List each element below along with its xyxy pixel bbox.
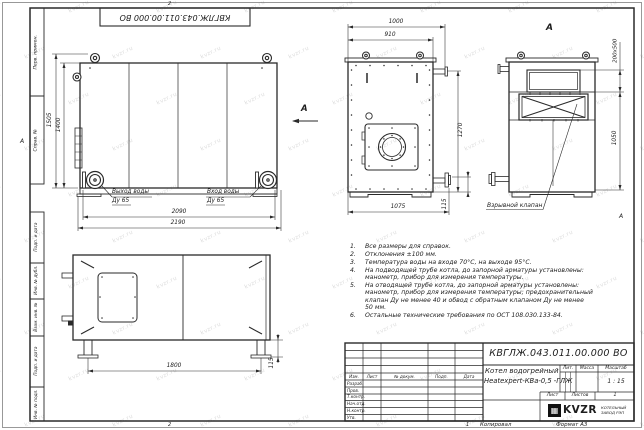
dim-top-leg-offset: 115: [270, 348, 276, 378]
zone-marker-right: А: [619, 214, 623, 220]
sheets-label: Листов: [565, 394, 595, 399]
footer-format-label: Формат А3: [556, 423, 587, 429]
label-water-outlet: Выход воды: [112, 190, 149, 196]
doc-name-line1: Котел водогрейный: [485, 368, 558, 375]
note-item: 1.Все размеры для справок.: [350, 243, 632, 250]
note-text: На подводящей трубе котла, до запорной а…: [365, 267, 584, 282]
row-tkontr: Т.контр.: [347, 395, 365, 399]
left-box-label-podp-data-1: Подп. и дата: [35, 212, 39, 262]
col-podp: Подп.: [428, 375, 455, 379]
note-item: 5.На отводящей трубе котла, до запорной …: [350, 282, 632, 312]
corner-stamp-designation: КВГЛЖ.043.011.00.000 ВО: [100, 13, 250, 21]
dim-side-height-overall: 1505: [48, 105, 54, 135]
note-number: 6.: [350, 312, 365, 319]
left-box-label-vzam-inv: Взам. инв. №: [35, 297, 39, 337]
col-izm: Изм.: [345, 375, 363, 379]
label-water-inlet: Вход воды: [207, 190, 239, 196]
col-dokum: № докум.: [381, 375, 428, 379]
dim-side-height-body: 1400: [57, 110, 63, 140]
row-nkontr: Н.контр.: [347, 409, 366, 413]
sheet-label: Лист: [540, 394, 565, 399]
left-box-label-inv-podl: Инв. № подл.: [35, 384, 39, 424]
dim-side-length-inner: 2090: [164, 210, 194, 216]
label-explosion-valve: Взрывной клапан: [487, 203, 542, 209]
sheets-value: 1: [600, 394, 630, 399]
org-name-line1: КОТЕЛЬНЫЙ: [601, 406, 626, 410]
row-prov: Пров.: [347, 389, 359, 393]
org-name-line2: ЗАВОД РЭП: [601, 411, 624, 415]
label-water-inlet-dn: Ду 65: [207, 199, 224, 205]
mass-label: Масса: [576, 367, 598, 372]
drawing-sheet: { "watermark": { "text": "kvzr.ru" }, "f…: [0, 0, 644, 430]
note-number: 3.: [350, 259, 365, 266]
row-razrab: Разраб.: [347, 382, 363, 386]
dim-rear-height: 1050: [613, 123, 619, 153]
zone-marker-bottom-sheet: 1: [466, 423, 469, 428]
note-text: Все размеры для справок.: [365, 243, 451, 250]
note-text: На отводящей трубе котла, до запорной ар…: [365, 282, 593, 312]
row-nachotd: Нач.отд.: [347, 402, 366, 406]
note-text: Отклонения ±100 мм.: [365, 251, 437, 258]
zone-marker-bottom: 2: [168, 423, 171, 428]
col-data: Дата: [455, 375, 483, 379]
dim-front-height: 1270: [459, 115, 465, 145]
technical-notes: 1.Все размеры для справок. 2.Отклонения …: [350, 243, 632, 320]
rear-view-title: А: [546, 24, 553, 33]
left-box-label-sprav-no: Справ. №: [35, 110, 40, 170]
note-number: 4.: [350, 267, 365, 282]
note-item: 2.Отклонения ±100 мм.: [350, 251, 632, 258]
left-box-label-perv-primen: Перв. примен.: [35, 22, 40, 82]
doc-name-line2: Heatexpert-КВа-0,5 -ГЛЖ: [484, 378, 559, 385]
scale-label: Масштаб: [598, 367, 634, 372]
footer-copied-label: Копировал: [480, 423, 511, 429]
note-item: 4.На подводящей трубе котла, до запорной…: [350, 267, 632, 282]
note-item: 6.Остальные технические требования по ОС…: [350, 312, 632, 319]
dim-front-pipe-offset: 115: [443, 189, 449, 219]
lit-label: Лит.: [560, 367, 576, 372]
org-logo-text: KVZR: [563, 405, 597, 416]
note-number: 5.: [350, 282, 365, 312]
dim-front-width-base: 1075: [383, 205, 413, 211]
note-number: 1.: [350, 243, 365, 250]
view-arrow-label: А: [301, 105, 308, 114]
note-item: 3.Температура воды на входе 70°С, на вых…: [350, 259, 632, 266]
dim-side-length-overall: 2190: [163, 221, 193, 227]
left-box-label-inv-dubl: Инв. № дубл.: [35, 260, 39, 300]
scale-value: 1 : 15: [598, 379, 634, 385]
title-block-designation: КВГЛЖ.043.011.00.000 ВО: [488, 349, 629, 359]
dim-rear-opening: 200х500: [613, 34, 619, 68]
col-list: Лист: [363, 375, 381, 379]
label-water-outlet-dn: Ду 65: [112, 199, 129, 205]
note-number: 2.: [350, 251, 365, 258]
note-text: Остальные технические требования по ОСТ …: [365, 312, 563, 319]
dim-front-width-body: 910: [375, 33, 405, 39]
zone-marker-left: А: [20, 139, 24, 145]
dim-top-leg-span: 1800: [159, 364, 189, 370]
note-text: Температура воды на входе 70°С, на выход…: [365, 259, 532, 266]
left-box-label-podp-data-2: Подп. и дата: [35, 336, 39, 386]
row-utv: Утв.: [347, 416, 356, 420]
org-logo-icon: ▦: [548, 404, 561, 417]
dim-front-width-overall: 1000: [381, 20, 411, 26]
zone-marker-top: 2: [168, 2, 171, 7]
